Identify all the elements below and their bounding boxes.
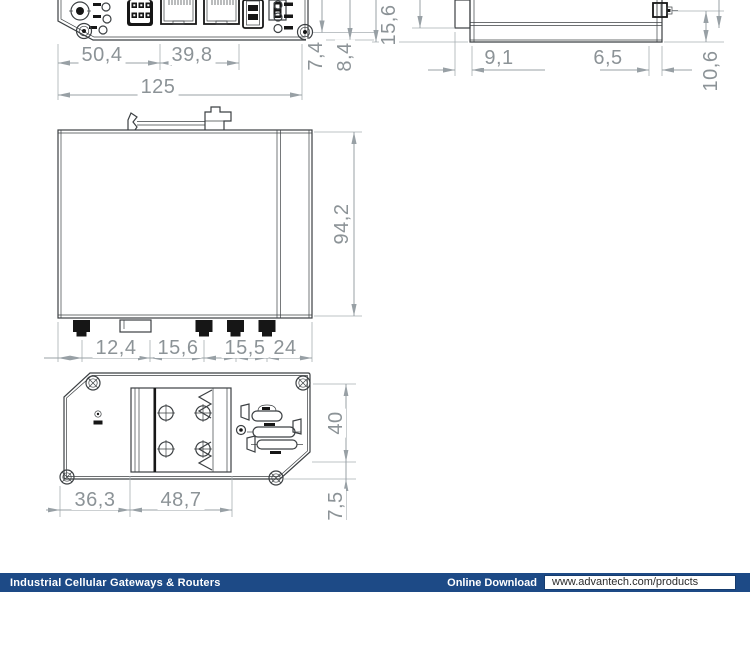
- dim-side-left: 9,1: [481, 48, 516, 68]
- ground-screw-icon: [69, 2, 91, 20]
- footer-bar: Industrial Cellular Gateways & Routers O…: [0, 573, 750, 592]
- corner-screw: [296, 376, 310, 390]
- tiny-port-label: [94, 421, 103, 425]
- tiny-sim-label: [264, 423, 275, 426]
- terminal-connector: [269, 0, 286, 20]
- back-ground-screw: [94, 411, 103, 425]
- dim-front-v2: 8,4: [335, 39, 355, 74]
- dim-body-height: 94,2: [332, 201, 352, 248]
- bottom-antenna-connectors: [73, 320, 276, 337]
- dim-back-1: 36,3: [72, 490, 119, 510]
- corner-screw: [60, 470, 74, 484]
- sim-tray-2: [253, 427, 295, 437]
- sim-slot-notch: [120, 320, 151, 332]
- tiny-port-label: [93, 3, 101, 6]
- dim-side-height: 15,6: [379, 2, 399, 49]
- footer-download-label: Online Download: [447, 577, 537, 589]
- ethernet-port-2: [204, 0, 239, 24]
- footer-category-title: Industrial Cellular Gateways & Routers: [10, 577, 221, 589]
- mount-screw: [157, 440, 175, 458]
- dim-front-width-total: 125: [138, 77, 179, 97]
- sim-tray-3: [257, 440, 297, 449]
- side-view: [44, 107, 362, 362]
- tiny-port-label: [93, 15, 101, 18]
- io-indicators: [89, 3, 111, 34]
- side-antenna-connector: [653, 3, 678, 17]
- footer-url-text[interactable]: www.advantech.com/products: [545, 577, 698, 588]
- antenna-connector-left-icon: [77, 24, 92, 39]
- dim-side-right: 6,5: [590, 48, 625, 68]
- dim-side-conn: 10,6: [701, 48, 721, 95]
- dim-bottom-1: 12,4: [93, 338, 140, 358]
- corner-screw: [86, 376, 100, 390]
- dim-front-width-left: 50,4: [79, 45, 126, 65]
- ethernet-port-1: [161, 0, 196, 24]
- dim-bottom-4: 24: [270, 338, 299, 358]
- mount-screw: [157, 404, 175, 422]
- footer-url-box[interactable]: www.advantech.com/products: [544, 575, 736, 590]
- dimension-drawings: [0, 0, 750, 650]
- din-rail-mount: [131, 388, 231, 472]
- dim-bottom-3: 15,5: [222, 338, 269, 358]
- mount-screw: [194, 404, 212, 422]
- dim-bottom-2: 15,6: [155, 338, 202, 358]
- dim-front-v1: 7,4: [306, 38, 326, 73]
- usb-port: [243, 0, 263, 28]
- dim-back-2: 48,7: [158, 490, 205, 510]
- dim-front-width-mid: 39,8: [169, 45, 216, 65]
- dim-back-height: 40: [326, 408, 346, 437]
- tiny-sim-label: [270, 451, 281, 454]
- sim-tray-1: [252, 411, 282, 421]
- tiny-led-label: [284, 26, 293, 30]
- power-connector: [127, 0, 153, 26]
- side-detail-view: [372, 0, 724, 76]
- tiny-led-label: [284, 15, 293, 19]
- tiny-sim-label: [262, 407, 270, 410]
- side-detail-dimensions: [372, 0, 724, 76]
- sim-tray-area: [237, 404, 304, 454]
- tiny-led-label: [284, 3, 293, 7]
- din-clip-top: [128, 107, 231, 130]
- dim-back-offset: 7,5: [326, 488, 346, 523]
- datasheet-dimension-page: 50,4 39,8 125 7,4 8,4 15,6 9,1 6,5 10,6 …: [0, 0, 750, 650]
